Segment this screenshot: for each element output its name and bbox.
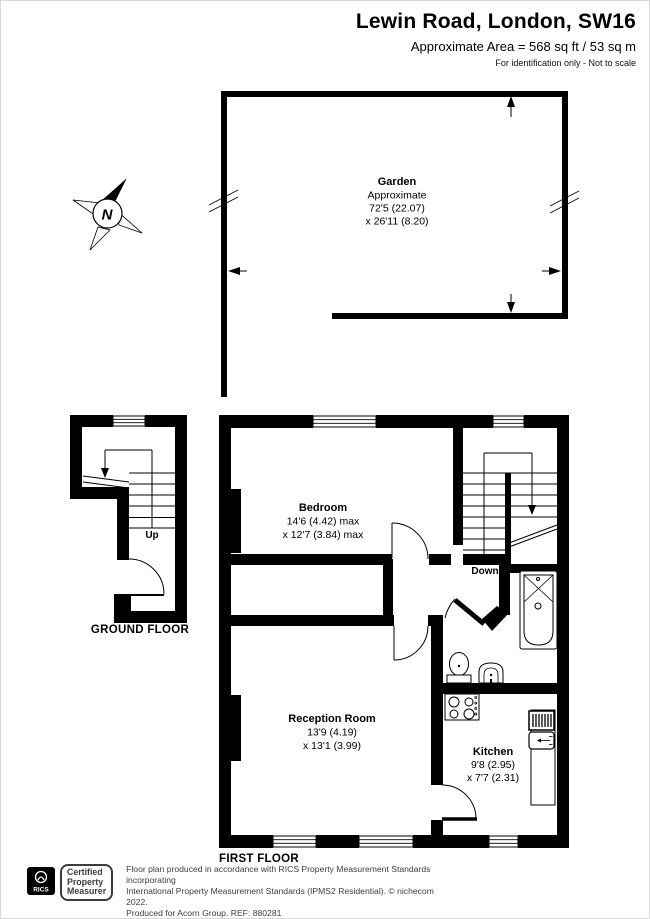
first-stair-label: Down <box>471 566 498 577</box>
footer-line2: International Property Measurement Stand… <box>126 886 456 908</box>
door-swing <box>129 559 164 595</box>
badge-line3: Measurer <box>67 887 106 897</box>
footer-line1: Floor plan produced in accordance with R… <box>126 864 456 886</box>
footer-line3: Produced for Acorn Group. REF: 880281 <box>126 908 456 919</box>
footer-disclaimer-text: Floor plan produced in accordance with R… <box>126 864 456 919</box>
floorplan-page: Lewin Road, London, SW16 Approximate Are… <box>0 0 650 919</box>
kitchen-name: Kitchen <box>473 746 514 758</box>
garden-dim2: x 26'11 (8.20) <box>365 216 428 228</box>
garden-dim1: 72'5 (22.07) <box>369 203 425 215</box>
garden-label: Garden Approximate 72'5 (22.07) x 26'11 … <box>365 176 428 228</box>
reception-label: Reception Room 13'9 (4.19) x 13'1 (3.99) <box>288 713 376 752</box>
garden-approx: Approximate <box>368 190 427 202</box>
garden-plan: Garden Approximate 72'5 (22.07) x 26'11 … <box>209 94 579 397</box>
toilet-icon <box>447 653 471 684</box>
kitchen-dim1: 9'8 (2.95) <box>471 759 515 771</box>
bedroom-dim2: x 12'7 (3.84) max <box>283 529 365 541</box>
ground-floor-caption: GROUND FLOOR <box>91 624 190 636</box>
window <box>113 416 145 426</box>
bathtub-icon <box>520 571 557 649</box>
bedroom-label: Bedroom 14'6 (4.42) max x 12'7 (3.84) ma… <box>283 502 365 541</box>
floorplan-drawing: Garden Approximate 72'5 (22.07) x 26'11 … <box>1 1 650 919</box>
compass-icon: N <box>73 179 142 250</box>
footer: RICS Certified Property Measurer Floor p… <box>27 864 456 919</box>
basin-icon <box>479 663 503 683</box>
north-arrow <box>100 179 126 202</box>
sink-unit-icon <box>529 710 555 805</box>
rics-wordmark: RICS <box>33 887 49 894</box>
ground-floor-walls <box>70 415 187 623</box>
certified-measurer-badge: Certified Property Measurer <box>60 864 113 901</box>
first-floor-plan: Down <box>219 415 569 865</box>
ground-stair-label: Up <box>145 530 158 541</box>
reception-dim2: x 13'1 (3.99) <box>303 740 361 752</box>
rics-logo: RICS <box>27 867 55 895</box>
kitchen-dim2: x 7'7 (2.31) <box>467 772 519 784</box>
bedroom-dim1: 14'6 (4.42) max <box>287 516 360 528</box>
compass-north-label: N <box>102 207 114 224</box>
kitchen-label: Kitchen 9'8 (2.95) x 7'7 (2.31) <box>467 746 519 784</box>
reception-name: Reception Room <box>288 713 376 725</box>
garden-name: Garden <box>378 176 417 188</box>
reception-dim1: 13'9 (4.19) <box>307 727 357 739</box>
bedroom-name: Bedroom <box>299 502 348 514</box>
ground-floor-plan: Up GROUND FLOOR <box>70 415 189 636</box>
hob-icon <box>445 694 479 720</box>
